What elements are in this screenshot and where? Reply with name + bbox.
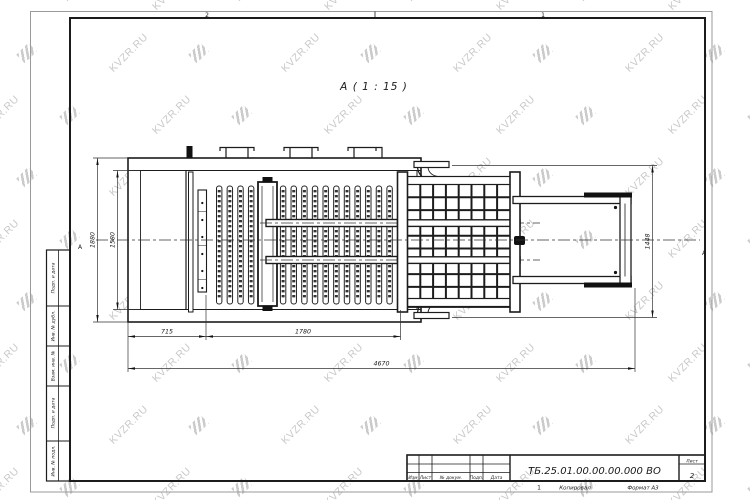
zone-left-row: А	[78, 244, 83, 251]
dim-left-section: 715	[161, 329, 173, 336]
dim-grate-section: 1780	[295, 329, 311, 336]
view-scale-label: А ( 1 : 15 )	[339, 81, 408, 93]
rev-col-ndokum: № докум.	[439, 475, 462, 481]
copied-label: Копировал	[559, 486, 591, 492]
drawing-svg: 2 1 А А 1 Подп. и дата Инв. № дубл. Взам…	[0, 0, 750, 500]
rake-carriage	[258, 177, 277, 311]
side-stamp-label: Инв. № подл.	[51, 445, 57, 476]
document-number: ТБ.25.01.00.00.00.000 ВО	[528, 466, 661, 477]
rev-col-data: Дата	[490, 475, 503, 481]
dim-inner-width: 1580	[110, 232, 117, 248]
side-stamp-label: Взам. инв. №	[51, 350, 57, 381]
extension-frame	[513, 193, 632, 288]
side-stamp-label: Подп. и дата	[51, 262, 57, 293]
top-brackets	[220, 148, 382, 159]
zone-top-left: 2	[205, 12, 209, 19]
zone-bottom: 1	[537, 485, 541, 492]
title-block: Изм Лист № докум. Подп. Дата ТБ.25.01.00…	[407, 455, 705, 492]
side-stamp-label: Инв. № дубл.	[51, 311, 57, 342]
side-stamp-label: Подп. и дата	[51, 397, 57, 428]
sheet-number: 2	[690, 472, 695, 480]
bolt-strip	[198, 190, 207, 292]
panel-knob	[514, 236, 525, 245]
side-stamp: Подп. и дата Инв. № дубл. Взам. инв. № П…	[47, 250, 71, 481]
sheet-label: Лист	[685, 459, 698, 465]
rev-col-list: Лист	[419, 475, 432, 481]
format-label: Формат А3	[627, 486, 659, 492]
rev-col-izm: Изм	[408, 475, 418, 481]
zone-top-right: 1	[541, 12, 545, 19]
rev-col-podp: Подп.	[470, 475, 484, 481]
dim-discharge-height: 1448	[645, 233, 652, 249]
top-pin	[187, 146, 193, 158]
zone-right-row: А	[702, 250, 707, 257]
dim-total-length: 4670	[373, 361, 389, 368]
drawing-sheet: KVZR.RUKVZR.RUKVZR.RUKVZR.RUKVZR.RUKVZR.…	[0, 0, 750, 500]
grate-bars	[217, 186, 393, 304]
dim-overall-width: 1880	[90, 232, 97, 248]
grid-panel	[398, 172, 526, 312]
